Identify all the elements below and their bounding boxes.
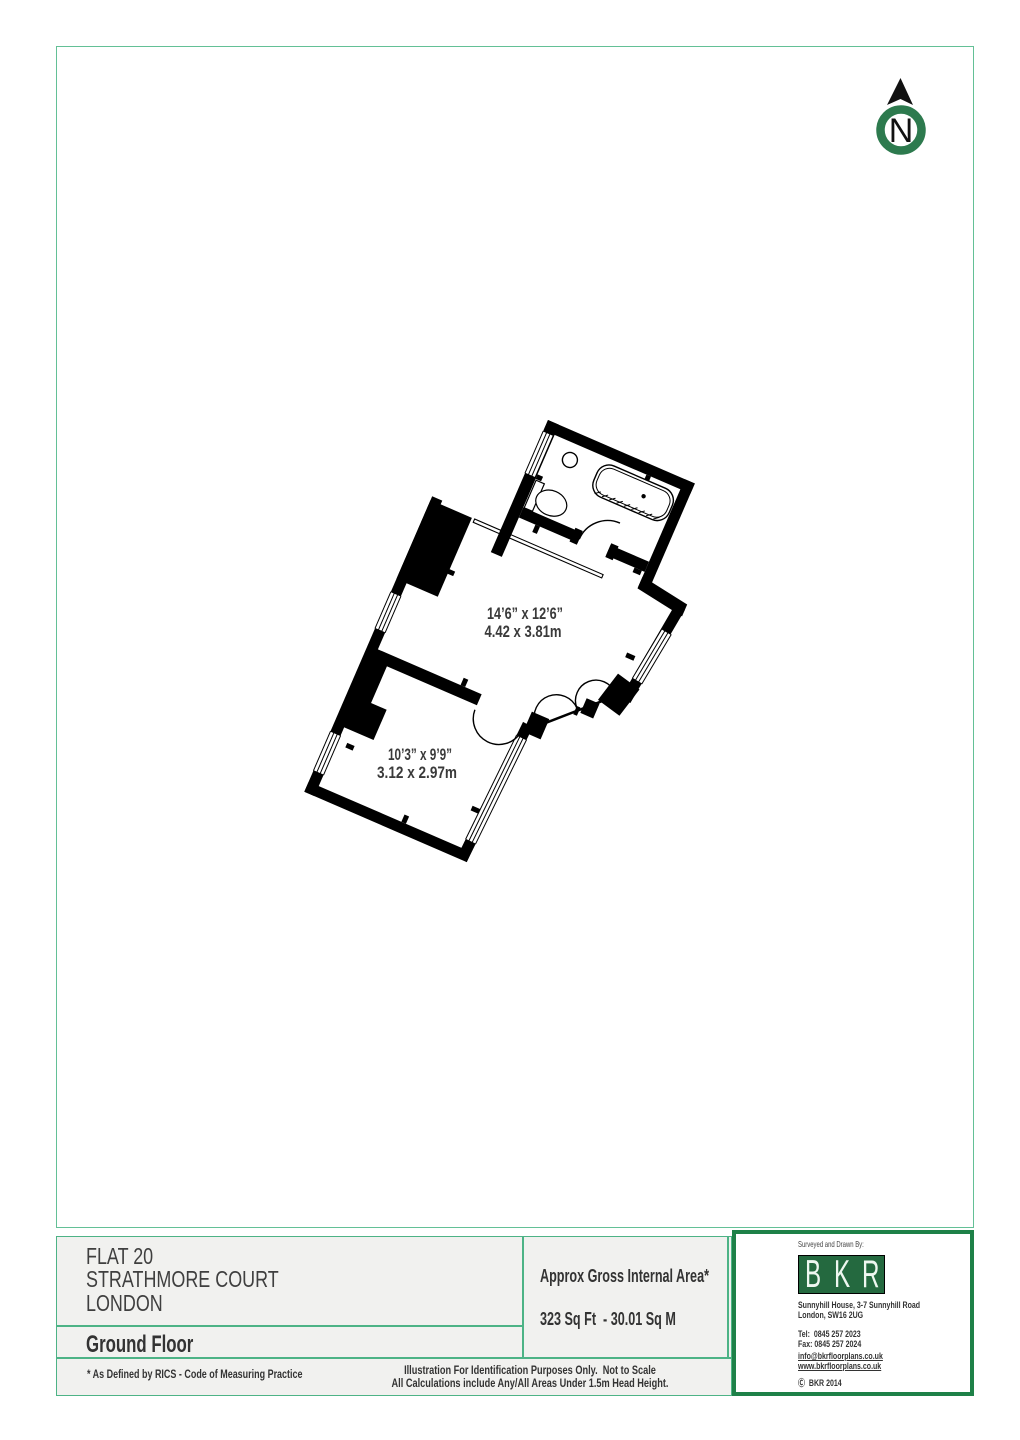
svg-text:N: N: [889, 112, 914, 150]
svg-text:3.12 x 2.97m: 3.12 x 2.97m: [377, 764, 457, 782]
svg-text:14’6” x 12’6”: 14’6” x 12’6”: [487, 605, 563, 623]
svg-text:4.42 x 3.81m: 4.42 x 3.81m: [485, 623, 562, 641]
svg-text:10’3” x 9’9”: 10’3” x 9’9”: [388, 746, 452, 764]
